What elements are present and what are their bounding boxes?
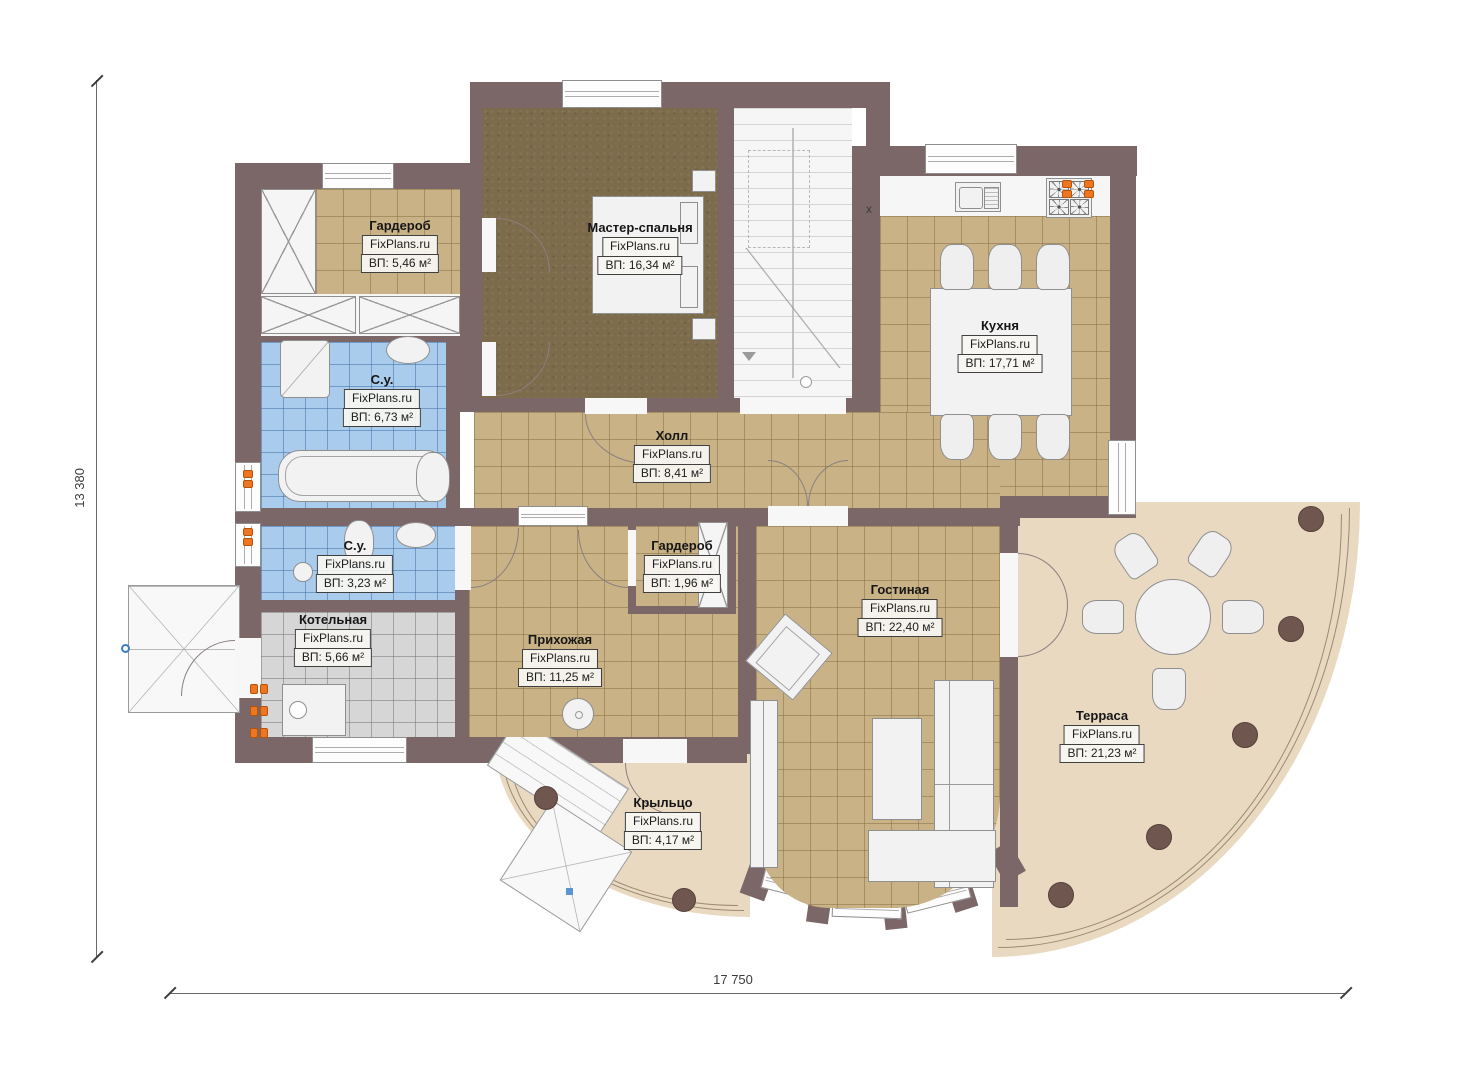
window (312, 737, 407, 763)
sink-bowl (959, 187, 983, 209)
stair-newel (800, 376, 812, 388)
room-area: ВП: 5,66 м² (294, 648, 372, 668)
brand-watermark: FixPlans.ru (862, 599, 938, 619)
room-name: Терраса (1060, 708, 1145, 723)
room-area: ВП: 5,46 м² (361, 254, 439, 274)
wall (470, 82, 890, 108)
staircase (734, 108, 852, 398)
brand-watermark: FixPlans.ru (362, 235, 438, 255)
room-name: Гостиная (858, 582, 943, 597)
chair (940, 414, 974, 460)
dimension-tick (91, 75, 103, 87)
brand-watermark: FixPlans.ru (522, 649, 598, 669)
wall (728, 518, 736, 614)
door-opening (482, 342, 496, 396)
stair-dashed-zone (748, 150, 810, 248)
column (1232, 722, 1258, 748)
radiator-icon (250, 684, 268, 694)
brand-watermark: FixPlans.ru (602, 237, 678, 257)
radiator-icon (250, 728, 268, 738)
radiator-icon (1084, 180, 1094, 198)
window (562, 80, 662, 108)
room-name: С.у. (343, 372, 421, 387)
boiler-dial (289, 701, 307, 719)
window (322, 163, 394, 189)
door-opening (768, 506, 848, 526)
floor-drain (293, 562, 313, 582)
chair (940, 244, 974, 290)
closet-unit (359, 296, 460, 334)
chair (988, 414, 1022, 460)
radiator-icon (243, 470, 253, 488)
marker-dot (121, 644, 130, 653)
room-area: ВП: 11,25 м² (518, 668, 602, 688)
radiator-icon (243, 528, 253, 546)
round-table (1135, 579, 1211, 655)
wall (460, 163, 482, 412)
brand-watermark: FixPlans.ru (1064, 725, 1140, 745)
room-label-porch: Крыльцо FixPlans.ru ВП: 4,17 м² (624, 795, 702, 850)
chair (1082, 600, 1124, 634)
wall (852, 146, 880, 403)
sink (386, 336, 430, 364)
brand-watermark: FixPlans.ru (295, 629, 371, 649)
pass-through-opening (518, 506, 588, 526)
door-opening (740, 398, 846, 414)
room-name: Холл (633, 428, 711, 443)
floor-plan: x Гард (0, 0, 1474, 1080)
room-area: ВП: 22,40 м² (858, 618, 943, 638)
kitchen-sink (955, 182, 1001, 212)
wall (718, 104, 734, 400)
room-label-hall: Холл FixPlans.ru ВП: 8,41 м² (633, 428, 711, 483)
door-opening (482, 218, 496, 272)
column (1048, 882, 1074, 908)
room-label-kitchen: Кухня FixPlans.ru ВП: 17,71 м² (958, 318, 1043, 373)
sofa (868, 830, 996, 882)
radiator-icon (250, 706, 268, 716)
door-opening (1000, 553, 1018, 657)
dimension-label-width: 17 750 (713, 972, 753, 987)
door-opening (585, 398, 647, 414)
room-label-terrace: Терраса FixPlans.ru ВП: 21,23 м² (1060, 708, 1145, 763)
chair (988, 244, 1022, 290)
room-name: Котельная (294, 612, 372, 627)
nightstand (692, 170, 716, 192)
room-label-wardrobe1: Гардероб FixPlans.ru ВП: 5,46 м² (361, 218, 439, 273)
room-area: ВП: 8,41 м² (633, 464, 711, 484)
burner-icon (1070, 199, 1090, 216)
burner-icon (1049, 199, 1069, 216)
sink (396, 522, 436, 548)
door-opening (455, 526, 471, 590)
room-name: Прихожая (518, 632, 602, 647)
room-name: Кухня (958, 318, 1043, 333)
room-name: Крыльцо (624, 795, 702, 810)
wall (261, 600, 461, 612)
marker-dot (566, 888, 573, 895)
room-area: ВП: 1,96 м² (643, 574, 721, 594)
tv-stand (750, 700, 778, 868)
room-name: Мастер-спальня (587, 220, 692, 235)
stair-break-line (740, 248, 846, 368)
room-label-wardrobe2: Гардероб FixPlans.ru ВП: 1,96 м² (643, 538, 721, 593)
column (534, 786, 558, 810)
stair-direction-icon (742, 352, 756, 361)
brand-watermark: FixPlans.ru (317, 555, 393, 575)
room-label-living: Гостиная FixPlans.ru ВП: 22,40 м² (858, 582, 943, 637)
kitchen-x-mark: x (866, 202, 872, 216)
closet-unit (261, 189, 316, 294)
front-door-opening (623, 739, 687, 763)
column (1298, 506, 1324, 532)
room-label-bath2: С.у. FixPlans.ru ВП: 3,23 м² (316, 538, 394, 593)
room-area: ВП: 21,23 м² (1060, 744, 1145, 764)
chair (1036, 414, 1070, 460)
dimension-line-horizontal (170, 993, 1346, 994)
window (925, 144, 1017, 174)
hall-floor (474, 412, 1000, 508)
chair (1222, 600, 1264, 634)
nightstand (692, 318, 716, 340)
chair (1036, 244, 1070, 290)
column (672, 888, 696, 912)
toilet (416, 452, 450, 502)
dimension-line-vertical (96, 80, 97, 958)
column (1278, 616, 1304, 642)
brand-watermark: FixPlans.ru (634, 445, 710, 465)
brand-watermark: FixPlans.ru (625, 812, 701, 832)
brand-watermark: FixPlans.ru (344, 389, 420, 409)
room-area: ВП: 4,17 м² (624, 831, 702, 851)
room-area: ВП: 17,71 м² (958, 354, 1043, 374)
floor-mat-dot (575, 711, 583, 719)
shower (280, 340, 330, 398)
room-label-bath1: С.у. FixPlans.ru ВП: 6,73 м² (343, 372, 421, 427)
closet-unit (261, 296, 356, 334)
boiler-unit (282, 684, 346, 736)
room-label-entry: Прихожая FixPlans.ru ВП: 11,25 м² (518, 632, 602, 687)
floor-mat (562, 698, 594, 730)
room-label-boiler: Котельная FixPlans.ru ВП: 5,66 м² (294, 612, 372, 667)
brand-watermark: FixPlans.ru (644, 555, 720, 575)
room-area: ВП: 3,23 м² (316, 574, 394, 594)
room-name: Гардероб (361, 218, 439, 233)
dimension-label-height: 13 380 (72, 468, 87, 508)
door-opening (628, 530, 636, 586)
sink-drainer (984, 187, 999, 209)
room-name: С.у. (316, 538, 394, 553)
room-name: Гардероб (643, 538, 721, 553)
room-area: ВП: 16,34 м² (598, 256, 683, 276)
chair (1152, 668, 1186, 710)
column (1146, 824, 1172, 850)
brand-watermark: FixPlans.ru (962, 335, 1038, 355)
room-label-master: Мастер-спальня FixPlans.ru ВП: 16,34 м² (587, 220, 692, 275)
window (1108, 440, 1136, 515)
dimension-tick (91, 951, 103, 963)
radiator-icon (1062, 180, 1072, 198)
coffee-table (872, 718, 922, 820)
room-area: ВП: 6,73 м² (343, 408, 421, 428)
